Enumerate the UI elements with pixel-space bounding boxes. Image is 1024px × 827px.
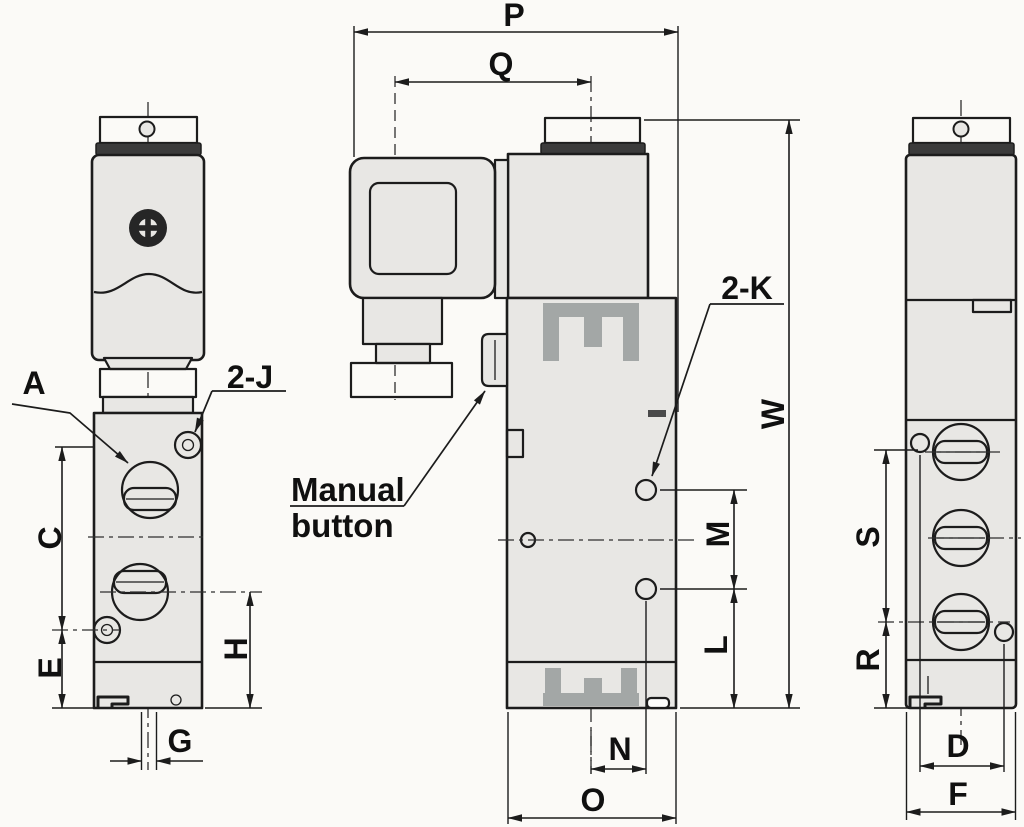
- left-coil-body: [92, 155, 204, 360]
- dim-l: L: [698, 589, 734, 708]
- connector-neck: [363, 298, 442, 344]
- manual-note-line2: button: [291, 507, 394, 544]
- front-cap-band: [541, 143, 645, 154]
- front-view: P Q W M L N: [290, 0, 800, 824]
- front-coil-body: [508, 154, 648, 298]
- dim-c: C: [32, 447, 93, 630]
- callout-2j: 2-J: [195, 359, 286, 432]
- dim-label-e: E: [32, 657, 68, 678]
- manual-button-note: Manual button: [290, 391, 485, 544]
- dim-q: Q: [395, 46, 591, 82]
- dim-o: O: [508, 712, 676, 824]
- front-body-slot: [648, 410, 666, 417]
- dim-label-c: C: [32, 526, 68, 549]
- left-side-view: C E H G A 2-J: [12, 102, 286, 770]
- dim-label-f: F: [948, 776, 968, 812]
- dim-label-h: H: [218, 637, 254, 660]
- dim-label-p: P: [503, 0, 524, 33]
- cable-connector-housing: [350, 158, 495, 298]
- left-cap-band: [96, 143, 201, 155]
- callout-label-a: A: [22, 365, 45, 401]
- front-base-notch: [647, 698, 669, 708]
- dim-label-o: O: [581, 782, 606, 818]
- dim-label-m: M: [700, 521, 736, 548]
- right-side-view: S R D F: [850, 100, 1021, 820]
- manual-override-button: [482, 334, 507, 386]
- callout-label-2j: 2-J: [227, 359, 273, 395]
- manual-note-line1: Manual: [291, 471, 405, 508]
- dim-label-l: L: [698, 635, 734, 655]
- phillips-screw: [129, 209, 167, 247]
- callout-label-2k: 2-K: [721, 270, 773, 306]
- dim-label-s: S: [850, 526, 886, 547]
- right-cap-band: [909, 143, 1014, 155]
- connector-ring: [376, 344, 430, 363]
- dim-label-n: N: [608, 731, 631, 767]
- front-knurled-cap: [545, 118, 640, 143]
- dim-label-r: R: [850, 648, 886, 671]
- dim-g: G: [110, 712, 203, 770]
- valve-dimension-drawing: C E H G A 2-J: [0, 0, 1024, 827]
- left-nut-neck: [103, 397, 193, 413]
- dim-label-d: D: [946, 728, 969, 764]
- dim-label-q: Q: [489, 46, 514, 82]
- dim-h: H: [205, 592, 262, 708]
- dim-e: E: [32, 630, 100, 708]
- connector-plate: [495, 160, 508, 298]
- connector-knurled-nut: [351, 363, 452, 397]
- left-nut-collar: [104, 358, 192, 369]
- right-cap-pin: [954, 122, 969, 137]
- technical-drawing-page: C E H G A 2-J: [0, 0, 1024, 827]
- left-cap-pin: [140, 122, 155, 137]
- front-valve-body: [507, 298, 676, 708]
- dim-label-g: G: [168, 723, 193, 759]
- dim-label-w: W: [755, 398, 791, 429]
